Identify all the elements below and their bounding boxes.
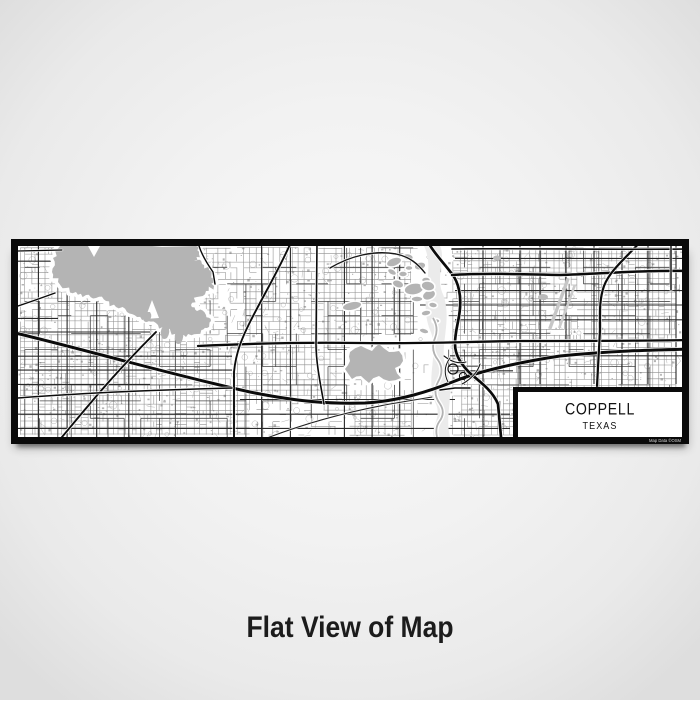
- svg-text:COPPELL: COPPELL: [565, 401, 635, 419]
- svg-text:Map Data ©OSM: Map Data ©OSM: [649, 438, 681, 443]
- svg-text:TEXAS: TEXAS: [583, 421, 618, 432]
- svg-text:Flat View of Map: Flat View of Map: [247, 611, 454, 644]
